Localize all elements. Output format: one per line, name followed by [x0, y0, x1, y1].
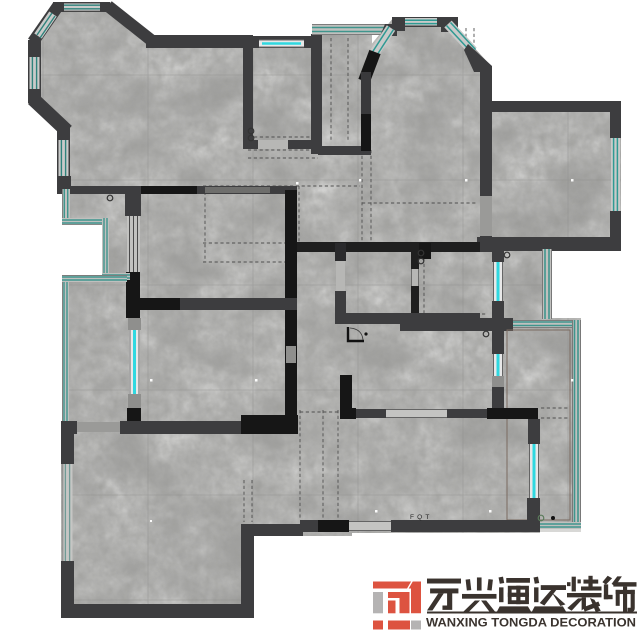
svg-text:FQT: FQT: [410, 514, 433, 521]
svg-text:WANXING TONGDA DECORATION: WANXING TONGDA DECORATION: [426, 616, 636, 630]
